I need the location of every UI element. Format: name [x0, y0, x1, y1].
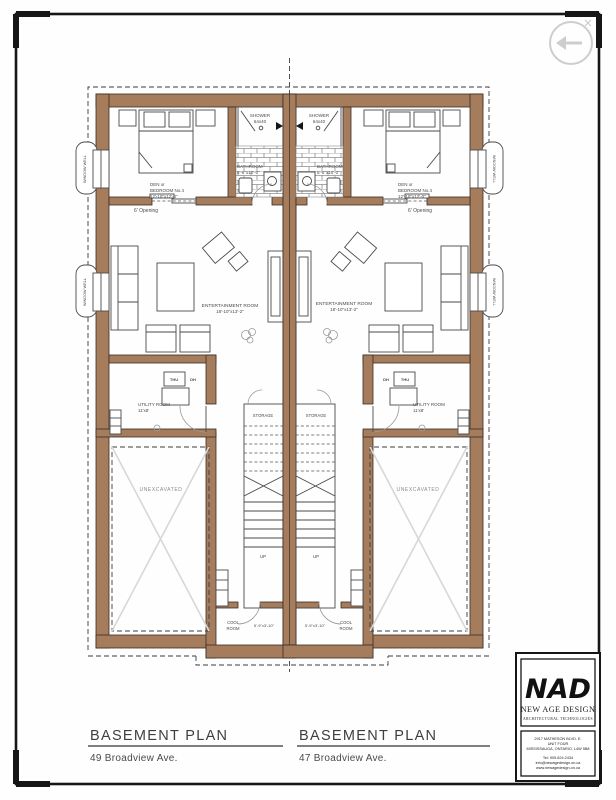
room-dim-utility: 11'x8' [413, 408, 424, 413]
room-label-utility: UTILITY ROOM [138, 402, 170, 407]
address-line-2: UNIT FOUR [548, 742, 569, 746]
room-dim-bathroom: 5'-6"x10'-0" [317, 170, 340, 175]
room-label-bathroom: BATHROOM [317, 164, 343, 169]
room-dim-shower: 64x40 [254, 119, 267, 124]
website-line: www.newagedesign.on.ca [536, 766, 581, 770]
appliance-thu-label: THU [401, 377, 409, 382]
unit-right-geometry [283, 94, 503, 658]
cool-room-label: COOL [340, 620, 353, 625]
nad-logo: NAD [525, 674, 591, 705]
up-label: UP [313, 554, 319, 559]
appliance-dh-label: DH [190, 377, 196, 382]
plan-address-right: 47 Broadview Ave. [299, 753, 387, 764]
room-dim-utility: 11'x8' [138, 408, 149, 413]
storage-label: STORAGE [253, 413, 274, 418]
window-well-label: WINDOW WELL [492, 155, 496, 183]
window-well-label: WINDOW WELL [83, 278, 87, 306]
address-line-3: MISSISSAUGA, ONTARIO, L4W 5B8 [526, 747, 589, 751]
plan-titles: BASEMENT PLAN 49 Broadview Ave. BASEMENT… [88, 728, 490, 764]
room-label-den2: BEDROOM No.4 [398, 188, 433, 193]
room-dim-den: 12'-10"x12'-0" [398, 194, 426, 199]
unexcavated-label: UNEXCAVATED [397, 487, 440, 493]
opening-label: 6' Opening [134, 208, 158, 214]
title-block: NAD NEW AGE DESIGN ARCHITECTURAL TECHNOL… [516, 653, 600, 781]
room-label-shower: SHOWER [309, 113, 330, 118]
room-label-den: DEN or [150, 182, 165, 187]
plan-title-right: BASEMENT PLAN [299, 728, 437, 744]
unit-left-geometry [76, 94, 296, 658]
window-well-label: WINDOW WELL [492, 278, 496, 306]
plan-address-left: 49 Broadview Ave. [90, 753, 178, 764]
plan-title-left: BASEMENT PLAN [90, 728, 228, 744]
company-name: NEW AGE DESIGN [521, 705, 596, 714]
unexcavated-label: UNEXCAVATED [140, 487, 183, 493]
opening-label: 6' Opening [408, 208, 432, 214]
appliance-dh-label: DH [383, 377, 389, 382]
north-arrow-icon [550, 20, 592, 64]
drawing-sheet: DEN or BEDROOM No.4 12'-10"x12'-0" SHOWE… [0, 0, 616, 800]
cool-room-dim: 5'-9"x3'-10" [254, 623, 275, 628]
cool-room-dim: 5'-9"x3'-10" [305, 623, 326, 628]
room-label-den2: BEDROOM No.4 [150, 188, 185, 193]
room-label-bathroom: BATHROOM [237, 164, 263, 169]
room-dim-den: 12'-10"x12'-0" [150, 194, 178, 199]
svg-text:ROOM: ROOM [226, 626, 240, 631]
appliance-thu-label: THU [170, 377, 178, 382]
address-line-1: 2917 MATHESON BLVD. E. [534, 737, 581, 741]
email-line: info@newagedesign.on.ca [536, 761, 582, 765]
room-dim-bathroom: 5'-6"x10'-0" [237, 170, 260, 175]
room-label-den: DEN or [398, 182, 413, 187]
phone-line: Tel: 905.624.2434 [543, 756, 573, 760]
up-label: UP [260, 554, 266, 559]
floorplan-drawing: DEN or BEDROOM No.4 12'-10"x12'-0" SHOWE… [0, 0, 616, 800]
cool-room-label: COOL [227, 620, 240, 625]
window-well-label: WINDOW WELL [83, 155, 87, 183]
room-dim-entertainment: 18'-10"x13'-2" [216, 309, 244, 314]
room-label-utility: UTILITY ROOM [413, 402, 445, 407]
company-tagline: ARCHITECTURAL TECHNOLOGIES [523, 717, 593, 721]
room-dim-entertainment: 18'-10"x13'-2" [330, 307, 358, 312]
storage-label: STORAGE [306, 413, 327, 418]
room-label-shower: SHOWER [250, 113, 271, 118]
svg-text:ROOM: ROOM [339, 626, 353, 631]
room-dim-shower: 64x40 [313, 119, 326, 124]
